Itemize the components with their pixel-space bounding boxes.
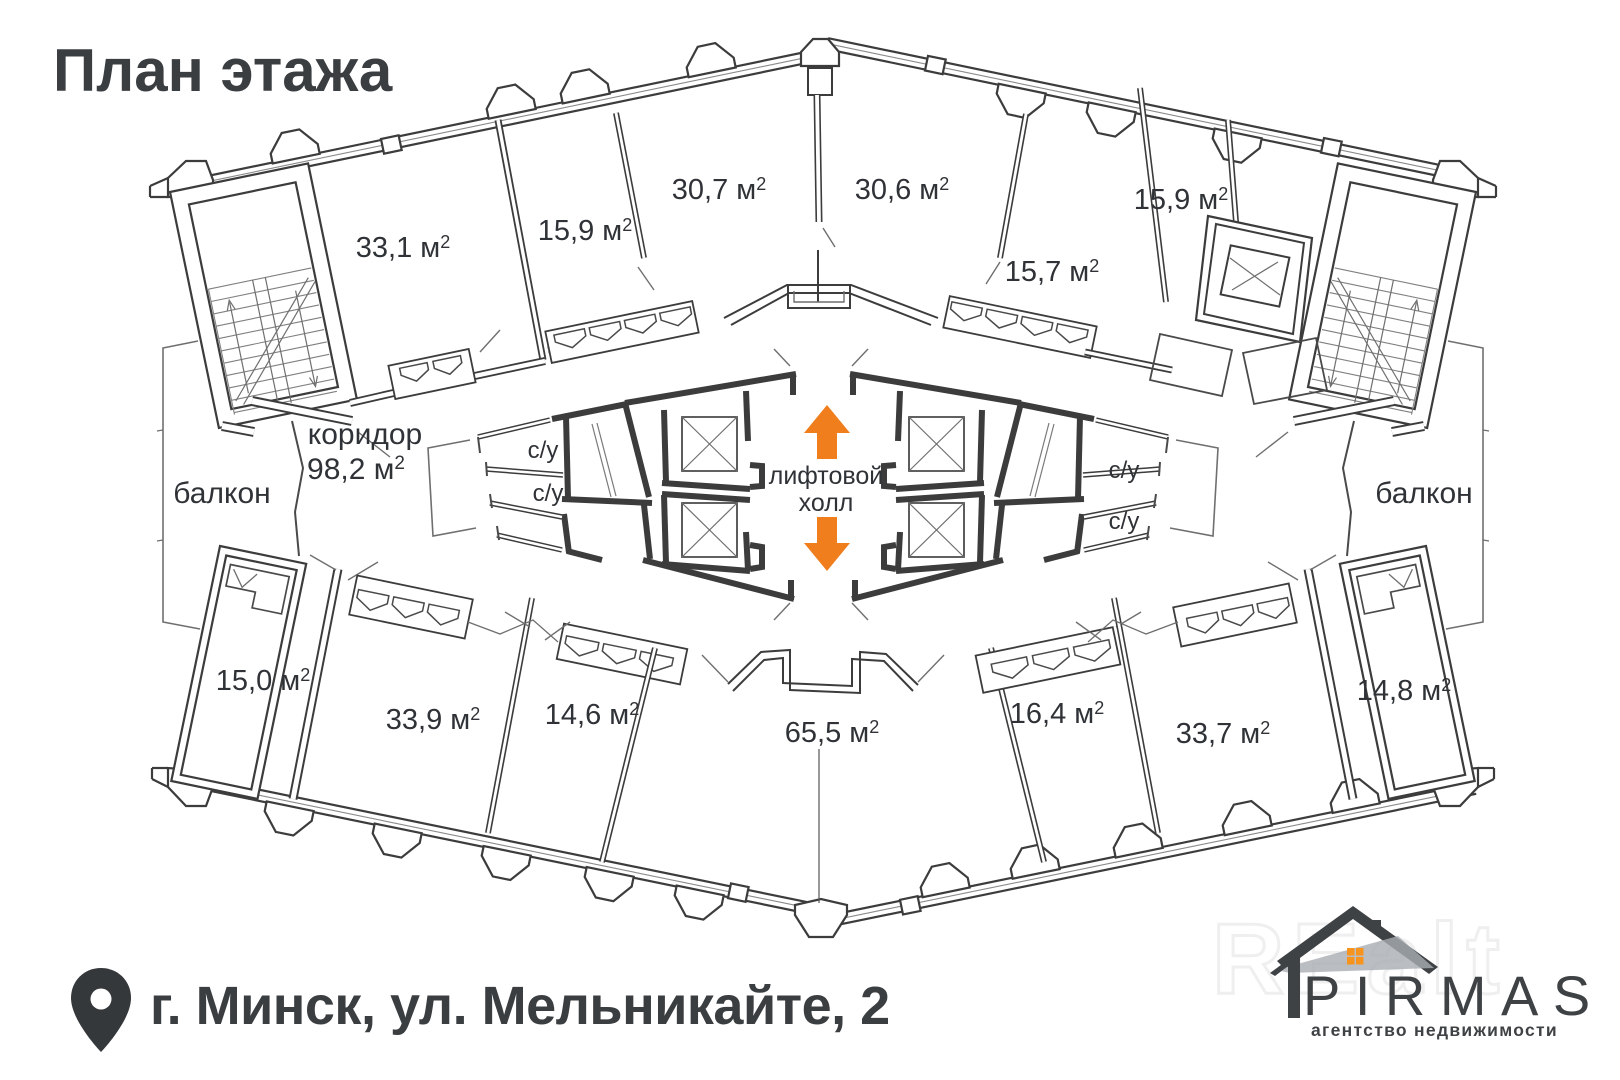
- svg-text:33,1 м2: 33,1 м2: [356, 232, 450, 264]
- svg-text:33,7 м2: 33,7 м2: [1176, 718, 1270, 750]
- svg-text:холл: холл: [799, 489, 854, 517]
- svg-text:балкон: балкон: [173, 477, 270, 510]
- svg-text:с/у: с/у: [1109, 457, 1140, 484]
- svg-text:План этажа: План этажа: [53, 37, 393, 104]
- svg-text:г. Минск, ул. Мельникайте, 2: г. Минск, ул. Мельникайте, 2: [150, 976, 890, 1036]
- svg-text:30,6 м2: 30,6 м2: [855, 174, 949, 206]
- svg-text:PIRMAS: PIRMAS: [1303, 964, 1605, 1027]
- svg-text:33,9 м2: 33,9 м2: [386, 704, 480, 736]
- svg-text:с/у: с/у: [528, 437, 559, 464]
- svg-text:15,9 м2: 15,9 м2: [538, 215, 632, 247]
- svg-text:14,6 м2: 14,6 м2: [545, 699, 639, 731]
- svg-text:30,7 м2: 30,7 м2: [672, 174, 766, 206]
- svg-text:лифтовой: лифтовой: [769, 462, 884, 490]
- svg-text:с/у: с/у: [533, 480, 564, 507]
- svg-text:коридор: коридор: [308, 418, 422, 451]
- svg-text:98,2 м2: 98,2 м2: [307, 453, 405, 486]
- svg-text:65,5 м2: 65,5 м2: [785, 717, 879, 749]
- svg-text:балкон: балкон: [1375, 477, 1472, 510]
- svg-text:14,8 м2: 14,8 м2: [1357, 675, 1451, 707]
- svg-text:16,4 м2: 16,4 м2: [1010, 698, 1104, 730]
- svg-text:агентство недвижимости: агентство недвижимости: [1311, 1020, 1558, 1040]
- svg-text:15,9 м2: 15,9 м2: [1134, 184, 1228, 216]
- svg-text:15,7 м2: 15,7 м2: [1005, 256, 1099, 288]
- svg-text:с/у: с/у: [1109, 508, 1140, 535]
- svg-text:15,0 м2: 15,0 м2: [216, 665, 310, 697]
